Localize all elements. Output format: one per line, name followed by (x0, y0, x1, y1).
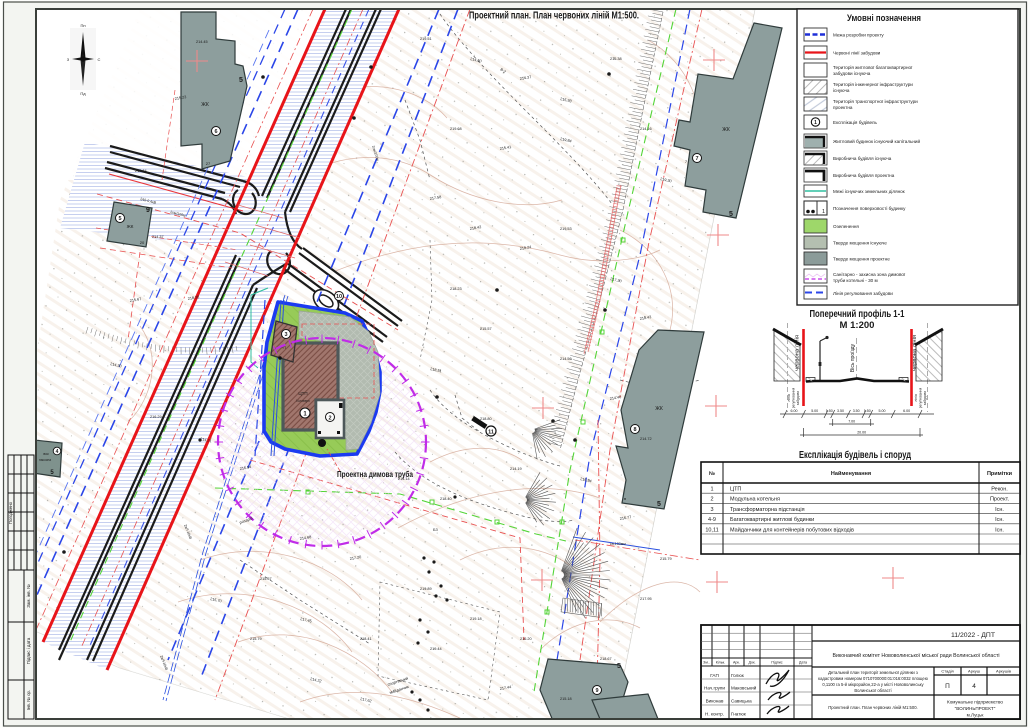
svg-text:Територія житлової багатокварт: Територія житлової багатоквартирної (833, 65, 913, 70)
svg-text:забудови існуюча: забудови існуюча (833, 71, 871, 76)
svg-text:насосна: насосна (39, 458, 51, 462)
svg-text:4-9: 4-9 (708, 517, 716, 523)
svg-text:Погоджено: Погоджено (8, 501, 13, 524)
svg-text:218.64: 218.64 (135, 169, 147, 173)
svg-text:Експлікація будівель: Експлікація будівель (833, 120, 878, 125)
svg-text:5: 5 (239, 77, 243, 84)
svg-text:1.50: 1.50 (826, 409, 833, 413)
svg-text:червона лінія: червона лінія (795, 335, 801, 371)
svg-text:Проектний план. План червоних: Проектний план. План червоних ліній М1:5… (828, 705, 917, 710)
svg-text:Модульна котельня: Модульна котельня (730, 497, 780, 503)
svg-text:4: 4 (972, 683, 976, 690)
svg-text:3.50: 3.50 (853, 409, 860, 413)
svg-text:ЦТП: ЦТП (298, 391, 307, 396)
svg-text:Багатоквартирні житлові будинк: Багатоквартирні житлові будинки (730, 517, 814, 523)
svg-text:регулювання: регулювання (919, 388, 923, 409)
svg-text:лінія: лінія (787, 394, 791, 401)
svg-text:10: 10 (336, 294, 342, 300)
svg-text:11/2022 - ДПТ: 11/2022 - ДПТ (951, 632, 995, 639)
svg-text:1: 1 (822, 209, 825, 215)
svg-text:регулювання: регулювання (792, 388, 796, 409)
svg-text:0,1100 га 5-й мікрорайон,22-а: 0,1100 га 5-й мікрорайон,22-а у місті Но… (822, 682, 924, 687)
svg-text:Виконавчий комітет Нововолинсь: Виконавчий комітет Нововолинської місько… (833, 652, 1000, 659)
svg-text:Лінія регулювання забудови: Лінія регулювання забудови (833, 291, 893, 296)
svg-text:Виконав: Виконав (706, 699, 724, 704)
svg-text:Детальний план території земел: Детальний план території земельної ділян… (828, 670, 918, 675)
svg-text:3.50: 3.50 (837, 409, 844, 413)
svg-text:219.89: 219.89 (420, 587, 432, 591)
svg-text:Аркуш: Аркуш (968, 669, 980, 674)
svg-text:м.Луцьк: м.Луцьк (967, 713, 985, 718)
svg-text:2: 2 (710, 497, 713, 503)
svg-text:Волинської області: Волинської області (854, 688, 891, 693)
svg-text:5: 5 (118, 216, 121, 222)
svg-text:Існ.: Існ. (995, 527, 1004, 533)
svg-text:1: 1 (814, 120, 817, 126)
svg-text:Територія інженерної інфрастру: Територія інженерної інфраструктури (833, 82, 913, 87)
svg-text:в: в (624, 496, 626, 501)
svg-text:Маковський: Маковський (731, 685, 757, 691)
svg-text:№: № (709, 471, 715, 477)
svg-text:Позначення поверховості будинк: Позначення поверховості будинку (833, 206, 906, 211)
svg-text:219.44: 219.44 (430, 647, 442, 651)
svg-text:Виробнича будівля існуюча: Виробнича будівля існуюча (833, 156, 892, 161)
svg-text:Межа розробки проекту: Межа розробки проекту (833, 33, 884, 38)
svg-text:218.67: 218.67 (600, 657, 612, 661)
svg-text:БЗ: БЗ (433, 528, 438, 532)
svg-text:1.50: 1.50 (864, 409, 871, 413)
svg-text:Існ.: Існ. (995, 517, 1004, 523)
svg-text:"ВОЛИНЬПРОЕКТ": "ВОЛИНЬПРОЕКТ" (955, 706, 996, 711)
svg-text:Нач.групи: Нач.групи (704, 686, 725, 691)
svg-text:9: 9 (146, 207, 150, 214)
svg-text:218.41: 218.41 (360, 637, 372, 641)
svg-text:214.37: 214.37 (152, 235, 164, 239)
svg-text:214.72: 214.72 (640, 437, 652, 441)
svg-text:218.80: 218.80 (480, 417, 492, 421)
svg-text:Дата: Дата (799, 661, 807, 665)
svg-text:вок: вок (43, 452, 49, 456)
svg-text:219.53: 219.53 (560, 227, 572, 231)
svg-text:Санітарно - захисна зона димов: Санітарно - захисна зона димової (833, 272, 906, 277)
svg-text:Вісь проїзду: Вісь проїзду (850, 343, 856, 372)
svg-text:ГАП: ГАП (710, 673, 719, 678)
svg-text:Док.: Док. (748, 661, 755, 665)
svg-text:214.45: 214.45 (196, 40, 208, 44)
svg-text:Голюк: Голюк (731, 673, 745, 678)
svg-text:3: 3 (284, 332, 287, 338)
svg-text:ЖК: ЖК (127, 224, 134, 229)
svg-text:215.79: 215.79 (660, 557, 672, 561)
svg-text:М 1:200: М 1:200 (840, 320, 875, 330)
svg-text:Майданчики для контейнерів поб: Майданчики для контейнерів побутових від… (730, 526, 854, 533)
svg-text:Існ.: Існ. (995, 507, 1004, 513)
svg-text:П: П (945, 683, 950, 690)
svg-text:Пд: Пд (80, 91, 86, 96)
svg-text:6.00: 6.00 (791, 409, 798, 413)
svg-text:Зм..: Зм.. (703, 661, 710, 665)
svg-text:Зам. інв. №: Зам. інв. № (26, 584, 31, 608)
svg-text:труби котельні - 30 м: труби котельні - 30 м (833, 278, 878, 283)
svg-text:Арк.: Арк. (733, 661, 740, 665)
svg-text:Савицька: Савицька (731, 699, 752, 704)
svg-text:216.20: 216.20 (520, 637, 532, 641)
svg-text:Умовні позначення: Умовні позначення (847, 13, 921, 23)
svg-text:6.00: 6.00 (903, 409, 910, 413)
svg-text:219.68: 219.68 (450, 127, 462, 131)
svg-text:10,11: 10,11 (705, 527, 718, 533)
svg-text:Тверде мощення проектне: Тверде мощення проектне (833, 257, 890, 262)
svg-text:Підпис: Підпис (771, 661, 782, 665)
svg-text:218.40: 218.40 (440, 497, 452, 501)
svg-text:Гнатюк: Гнатюк (731, 712, 747, 717)
svg-text:Інв. № ор.: Інв. № ор. (26, 690, 31, 710)
svg-text:Трансформаторна підстанція: Трансформаторна підстанція (730, 507, 805, 513)
svg-text:8: 8 (633, 427, 636, 433)
svg-text:проектна: проектна (833, 105, 853, 110)
svg-text:існуюча: існуюча (833, 88, 850, 93)
svg-text:11: 11 (488, 430, 494, 436)
svg-text:Н. контр.: Н. контр. (705, 712, 724, 717)
svg-text:Підпис і дата: Підпис і дата (26, 637, 31, 664)
svg-text:Примітки: Примітки (987, 471, 1012, 477)
svg-text:5.00: 5.00 (879, 409, 886, 413)
svg-text:Межі існуючих земельних діляно: Межі існуючих земельних ділянок (833, 189, 906, 194)
svg-text:ЖК: ЖК (201, 102, 209, 108)
svg-text:214.19: 214.19 (510, 467, 522, 471)
svg-text:1: 1 (710, 487, 713, 493)
svg-text:Проектна димова труба: Проектна димова труба (337, 470, 413, 479)
svg-text:Найменування: Найменування (831, 470, 871, 477)
svg-text:7.00: 7.00 (848, 420, 855, 424)
svg-text:забудови: забудови (923, 391, 927, 406)
svg-text:Виробнича будівля проектна: Виробнича будівля проектна (833, 173, 895, 178)
svg-text:20.00: 20.00 (857, 431, 866, 435)
svg-text:5: 5 (729, 211, 733, 218)
svg-text:Територія транспортної інфраст: Територія транспортної інфраструктури (833, 99, 918, 104)
svg-text:Стадія: Стадія (941, 669, 953, 674)
svg-text:Озеленення: Озеленення (833, 224, 859, 229)
svg-text:Аркушів: Аркушів (996, 669, 1011, 674)
svg-text:215.57: 215.57 (260, 577, 272, 581)
svg-text:214.16: 214.16 (640, 127, 652, 131)
svg-text:лінія: лінія (914, 394, 918, 401)
svg-text:27: 27 (206, 161, 211, 166)
svg-text:219.51: 219.51 (420, 37, 432, 41)
svg-text:Червоні лінії забудови: Червоні лінії забудови (833, 51, 881, 56)
svg-text:5: 5 (617, 663, 621, 670)
svg-text:217.95: 217.95 (640, 597, 652, 601)
svg-text:сн.133мм: сн.133мм (610, 542, 626, 546)
svg-text:9: 9 (595, 688, 598, 694)
svg-text:Пн: Пн (80, 23, 85, 28)
svg-text:4: 4 (56, 449, 59, 455)
svg-text:20: 20 (140, 240, 145, 245)
svg-text:N-поверх: N-поверх (296, 399, 310, 403)
svg-text:С: С (98, 57, 101, 62)
svg-text:219.18: 219.18 (470, 617, 482, 621)
svg-text:216.38: 216.38 (610, 57, 622, 61)
svg-text:5.00: 5.00 (811, 409, 818, 413)
svg-text:7: 7 (695, 156, 698, 162)
svg-text:Тверде мощення існуюче: Тверде мощення існуюче (833, 241, 887, 246)
svg-text:Комунальне підприємство: Комунальне підприємство (947, 700, 1003, 705)
svg-text:215.79: 215.79 (250, 637, 262, 641)
svg-text:кадастровим номером 0710700000: кадастровим номером 0710700000:01:016:00… (818, 676, 928, 681)
svg-text:ЖК: ЖК (722, 127, 730, 133)
svg-text:забудови: забудови (796, 391, 800, 406)
svg-text:ЦТП: ЦТП (730, 487, 741, 493)
svg-text:214.56: 214.56 (560, 357, 572, 361)
svg-text:218.23: 218.23 (450, 287, 462, 291)
svg-text:3: 3 (710, 507, 713, 513)
svg-text:5: 5 (657, 501, 661, 508)
svg-text:Експлікація будівель і споруд: Експлікація будівель і споруд (799, 449, 911, 461)
svg-text:215.18: 215.18 (560, 697, 572, 701)
svg-text:216.29: 216.29 (150, 415, 162, 419)
svg-text:Рекон.: Рекон. (991, 487, 1008, 493)
svg-text:ЖК: ЖК (655, 406, 663, 412)
svg-text:2: 2 (328, 416, 331, 422)
svg-text:6: 6 (214, 129, 217, 135)
svg-text:Проект.: Проект. (990, 497, 1010, 503)
svg-text:Проектний план. План червоних: Проектний план. План червоних ліній М1:5… (469, 11, 639, 22)
svg-text:червона лінія: червона лінія (912, 335, 918, 371)
svg-text:Кільк.: Кільк. (716, 661, 725, 665)
svg-text:215.57: 215.57 (480, 327, 492, 331)
svg-text:Поперечний профіль 1-1: Поперечний профіль 1-1 (810, 308, 905, 320)
svg-text:Житловий будинок існуючий капі: Житловий будинок існуючий капітальний (833, 138, 920, 144)
